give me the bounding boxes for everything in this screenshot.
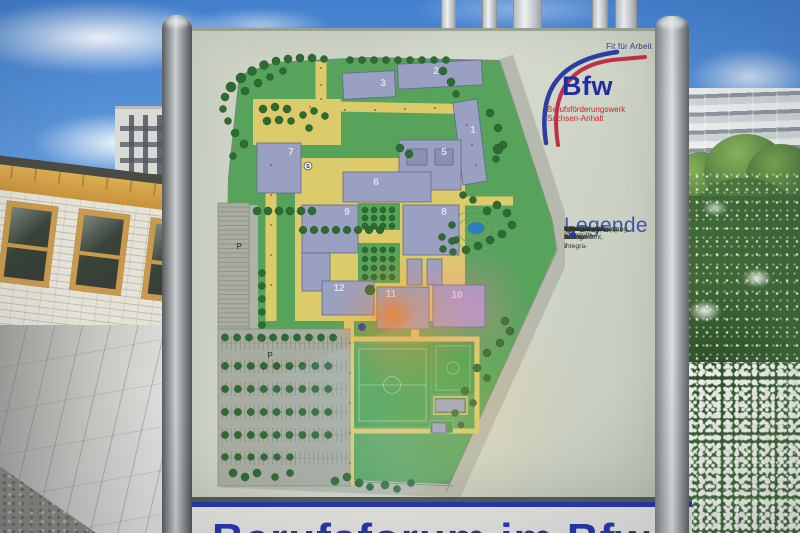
tree: [443, 57, 450, 64]
lamp-dot: [434, 107, 436, 109]
tree: [274, 454, 281, 461]
lamp-dot: [320, 67, 322, 69]
tree: [254, 79, 262, 87]
tree: [286, 362, 293, 369]
tree: [287, 470, 294, 477]
tree: [273, 362, 280, 369]
lamp-dot: [349, 402, 351, 404]
lamp-dot: [270, 284, 272, 286]
lamp-dot: [475, 164, 477, 166]
building-label: 2: [433, 66, 439, 77]
tree: [389, 274, 395, 280]
building-label: 3: [380, 78, 386, 89]
tree: [396, 144, 404, 152]
tree: [389, 256, 395, 262]
bottom-banner: Berufsforum im Bfw: [180, 502, 692, 533]
tree: [260, 61, 269, 70]
tree: [272, 57, 280, 65]
tree: [447, 78, 455, 86]
tree: [367, 484, 374, 491]
tree: [371, 265, 377, 271]
tree: [275, 116, 283, 124]
tree: [225, 118, 232, 125]
tree: [305, 334, 312, 341]
tree: [264, 207, 272, 215]
tree: [483, 349, 491, 357]
tree: [267, 74, 274, 81]
tree: [221, 408, 228, 415]
tree: [371, 274, 377, 280]
tree: [311, 108, 318, 115]
tree: [321, 226, 329, 234]
tree: [261, 454, 268, 461]
tree: [362, 247, 368, 253]
tree: [508, 221, 516, 229]
tree: [247, 362, 254, 369]
tree: [493, 201, 501, 209]
tree: [280, 68, 287, 75]
tree: [440, 246, 447, 253]
building-label: 1: [470, 125, 476, 136]
tree: [273, 431, 280, 438]
lamp-dot: [466, 124, 468, 126]
building-label: 10: [451, 290, 463, 301]
tree: [408, 480, 415, 487]
tree: [474, 242, 482, 250]
tree: [299, 408, 306, 415]
tree: [259, 105, 267, 113]
tree: [325, 385, 332, 392]
tree: [275, 207, 283, 215]
lamp-dot: [349, 432, 351, 434]
window: [69, 208, 131, 296]
tree: [299, 226, 307, 234]
tree: [486, 109, 494, 117]
tree: [470, 400, 477, 407]
logo-subtitle-line2: Sachsen-Anhalt: [547, 114, 625, 123]
building-label: 7: [288, 147, 294, 158]
tree: [380, 274, 386, 280]
tree: [405, 150, 413, 158]
tree: [273, 385, 280, 392]
tree: [380, 223, 386, 229]
flower-cluster: [688, 300, 722, 322]
tree: [234, 431, 241, 438]
tree: [494, 124, 502, 132]
building-label: 5: [441, 147, 447, 158]
tree: [462, 246, 470, 254]
tree: [288, 118, 295, 125]
tree: [503, 209, 511, 217]
banner-text: Berufsforum im Bfw: [212, 515, 650, 533]
tree: [498, 230, 506, 238]
lamp-dot: [374, 109, 376, 111]
tree: [269, 334, 276, 341]
tree: [221, 334, 228, 341]
tree: [293, 334, 300, 341]
tree: [460, 192, 467, 199]
tree: [325, 408, 332, 415]
tree: [347, 57, 354, 64]
building-label: 6: [373, 177, 379, 188]
tree: [248, 67, 257, 76]
building-label: 9: [344, 207, 350, 218]
tree: [470, 197, 477, 204]
tree: [449, 222, 456, 229]
tree: [362, 223, 368, 229]
tree: [230, 153, 237, 160]
tree: [300, 112, 307, 119]
tree: [473, 364, 481, 372]
tree: [506, 327, 514, 335]
sign-panel: 12356789101112PPS Fit für Arbeit Bfw Ber…: [192, 28, 655, 497]
bfw-logo: Fit für Arbeit Bfw Berufsförderungswerk …: [532, 39, 654, 157]
tree: [354, 226, 362, 234]
lamp-dot: [270, 224, 272, 226]
tree: [299, 431, 306, 438]
lamp-dot: [309, 106, 311, 108]
tree: [296, 54, 304, 62]
sign-post-left: [162, 15, 192, 533]
building-label: 8: [441, 207, 447, 218]
white-flowers: [678, 362, 800, 533]
lamp-dot: [349, 342, 351, 344]
lamp-dot: [270, 254, 272, 256]
lamp-dot: [284, 106, 286, 108]
logo-tagline: Fit für Arbeit: [606, 42, 652, 51]
tree: [240, 140, 248, 148]
tree: [331, 477, 339, 485]
campus-map: 12356789101112PPS: [215, 53, 565, 497]
tree: [394, 486, 401, 493]
parking-label: P: [236, 242, 242, 251]
tree: [235, 454, 242, 461]
banner-blue-stripe: [180, 502, 692, 507]
tree: [312, 431, 319, 438]
lamp-dot: [270, 164, 272, 166]
lamp-dot: [404, 108, 406, 110]
building-label: 11: [386, 289, 397, 300]
tree: [362, 215, 368, 221]
tree: [259, 309, 266, 316]
tree: [308, 207, 316, 215]
building-label: 12: [333, 283, 345, 294]
tree: [362, 256, 368, 262]
tree: [260, 385, 267, 392]
lamp-dot: [344, 109, 346, 111]
tree: [371, 223, 377, 229]
tree: [493, 156, 500, 163]
tree: [286, 408, 293, 415]
tree: [312, 408, 319, 415]
lamp-dot: [320, 84, 322, 86]
tree: [259, 296, 266, 303]
tree: [247, 431, 254, 438]
tree: [389, 215, 395, 221]
tree: [253, 207, 261, 215]
logo-subtitle-line1: Berufsförderungswerk: [547, 105, 625, 114]
tree: [260, 408, 267, 415]
tree: [371, 215, 377, 221]
tree: [493, 144, 503, 154]
tree: [362, 207, 368, 213]
tree: [439, 234, 446, 241]
tree: [496, 339, 504, 347]
tree: [389, 223, 395, 229]
tree: [248, 454, 255, 461]
tree: [271, 103, 279, 111]
tree: [359, 57, 366, 64]
tree: [299, 385, 306, 392]
lamp-dot: [320, 98, 322, 100]
tree: [407, 57, 414, 64]
tree: [259, 283, 266, 290]
tree: [461, 387, 469, 395]
tree: [259, 322, 266, 329]
tree: [234, 408, 241, 415]
tree: [325, 431, 332, 438]
flower-cluster: [742, 268, 772, 288]
tree: [501, 317, 509, 325]
tree: [226, 82, 236, 92]
tree: [233, 334, 240, 341]
tree: [308, 54, 316, 62]
tree: [222, 454, 229, 461]
tree: [247, 408, 254, 415]
tree: [247, 385, 254, 392]
tree: [431, 57, 438, 64]
tree: [458, 422, 464, 428]
tree: [241, 87, 249, 95]
tree: [395, 57, 402, 64]
tree: [450, 249, 457, 256]
tree: [380, 265, 386, 271]
tree: [383, 57, 390, 64]
tree: [381, 481, 389, 489]
tree: [260, 362, 267, 369]
tree: [260, 431, 267, 438]
tree: [272, 474, 279, 481]
window: [0, 200, 59, 288]
tree: [306, 125, 313, 132]
tree: [229, 469, 237, 477]
tree: [297, 207, 305, 215]
tree: [221, 385, 228, 392]
legend: Legende 1Wohnheim 12Wohnheim 23Wohnheim …: [564, 214, 654, 226]
tree: [483, 207, 491, 215]
tree: [286, 431, 293, 438]
tree: [452, 410, 459, 417]
tree: [484, 375, 491, 382]
tree: [286, 207, 294, 215]
tree: [263, 117, 271, 125]
tree: [355, 479, 363, 487]
tree: [221, 93, 229, 101]
tree: [241, 473, 249, 481]
tree: [343, 226, 351, 234]
lamp-dot: [349, 372, 351, 374]
tree: [221, 431, 228, 438]
tree: [286, 385, 293, 392]
parking-label: P: [267, 351, 273, 360]
tree: [362, 265, 368, 271]
tree: [486, 236, 494, 244]
tree: [234, 362, 241, 369]
tree: [389, 207, 395, 213]
tree: [453, 91, 460, 98]
logo-brand: Bfw: [562, 71, 613, 102]
tree: [287, 454, 294, 461]
tree: [380, 247, 386, 253]
logo-subtitle: Berufsförderungswerk Sachsen-Anhalt: [547, 105, 625, 123]
tree: [317, 334, 324, 341]
standort-label: Standort: [564, 232, 590, 239]
tree: [259, 270, 266, 277]
tree: [332, 226, 340, 234]
tree: [221, 362, 228, 369]
tree: [234, 385, 241, 392]
tree: [310, 226, 318, 234]
tree: [329, 334, 336, 341]
tree: [284, 55, 292, 63]
tree: [371, 57, 378, 64]
tree: [245, 334, 252, 341]
tree: [371, 247, 377, 253]
tree: [389, 265, 395, 271]
tree: [312, 385, 319, 392]
tree: [273, 408, 280, 415]
tree: [380, 215, 386, 221]
tree: [321, 56, 328, 63]
tree: [220, 106, 227, 113]
tree: [380, 256, 386, 262]
tree: [371, 256, 377, 262]
flower-cluster: [702, 200, 728, 216]
tree: [325, 362, 332, 369]
tree: [371, 207, 377, 213]
tree: [439, 67, 447, 75]
standort-marker: [358, 323, 365, 330]
tree: [299, 362, 306, 369]
tree: [312, 362, 319, 369]
tree: [380, 207, 386, 213]
sign-post-right: [655, 16, 689, 533]
lamp-dot: [471, 144, 473, 146]
tree: [281, 334, 288, 341]
tree: [343, 473, 351, 481]
photo-of-campus-map-sign: 12356789101112PPS Fit für Arbeit Bfw Ber…: [0, 0, 800, 533]
lamp-dot: [270, 194, 272, 196]
tree: [231, 129, 239, 137]
tree: [322, 113, 329, 120]
tree: [419, 57, 426, 64]
tree: [449, 238, 456, 245]
tree: [253, 469, 261, 477]
assembly-point-letter: S: [306, 164, 310, 170]
tree: [365, 285, 375, 295]
flowering-bush: [672, 150, 800, 533]
tree: [389, 247, 395, 253]
tree: [362, 274, 368, 280]
tree: [283, 105, 291, 113]
lamp-dot: [349, 462, 351, 464]
tree: [236, 73, 246, 83]
tree: [257, 334, 264, 341]
